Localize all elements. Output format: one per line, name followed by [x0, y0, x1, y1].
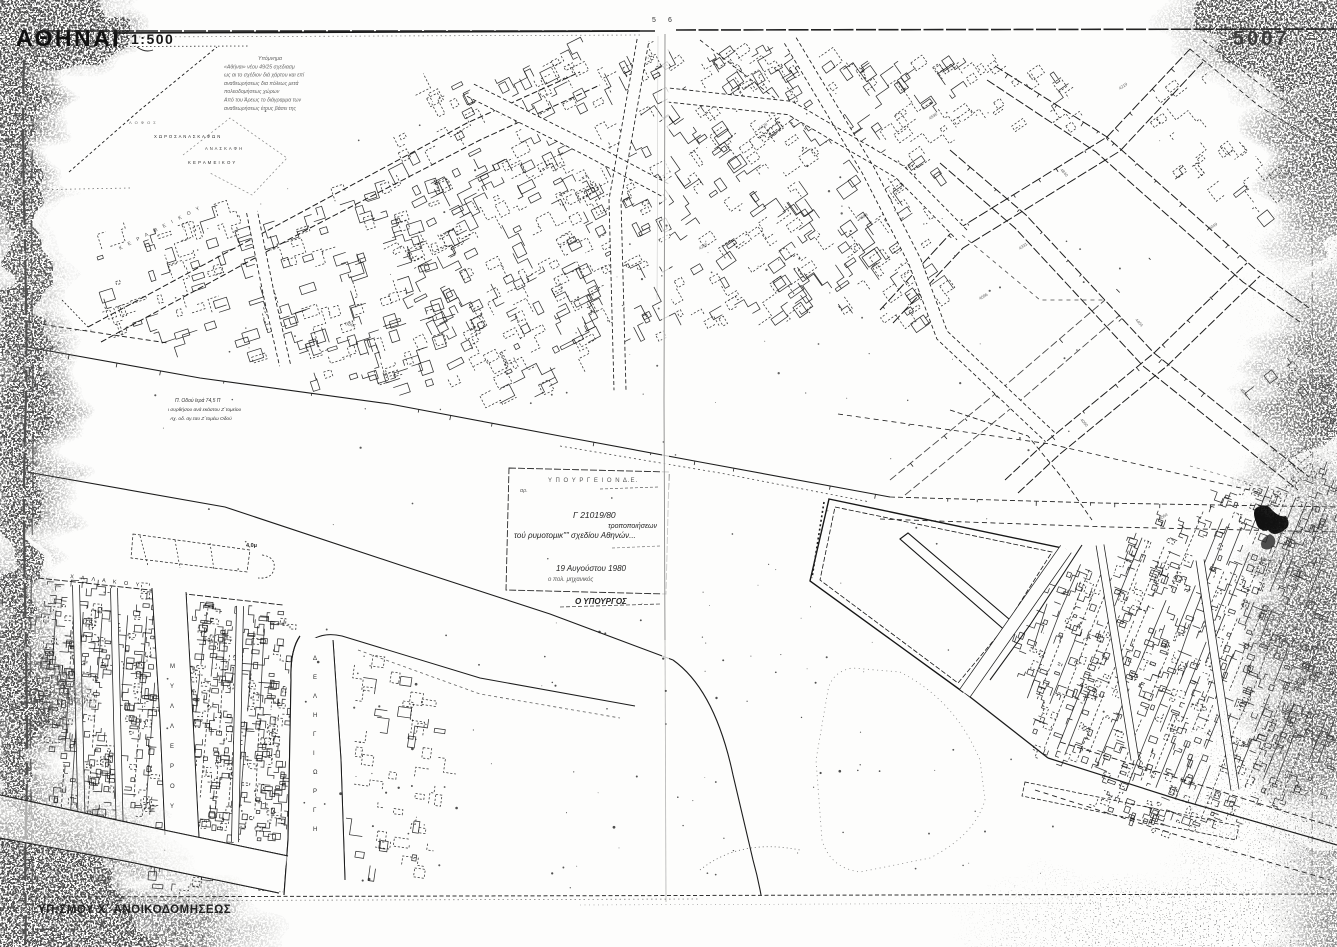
svg-text:5007: 5007 [1233, 28, 1290, 50]
svg-text:ΥΠ:ΣΜΟΥ Χ΄ ΑΝΟΙΚΟΔΟΜΗΣΕΩΣ: ΥΠ:ΣΜΟΥ Χ΄ ΑΝΟΙΚΟΔΟΜΗΣΕΩΣ [38, 904, 231, 916]
svg-text:ΑΘΗΝΑΙ: ΑΘΗΝΑΙ [16, 25, 121, 51]
